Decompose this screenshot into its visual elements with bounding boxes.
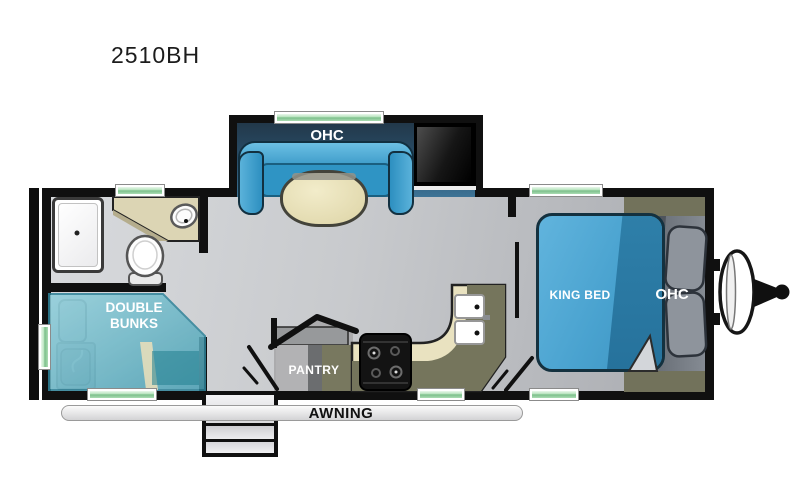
double-bunks-label: DOUBLE BUNKS	[84, 300, 184, 332]
window-bunk-side	[39, 325, 50, 369]
vanity-sink	[113, 197, 200, 241]
spare-tire	[711, 251, 754, 333]
window-bedroom-bottom	[530, 389, 578, 400]
window-bathroom	[116, 185, 164, 196]
kitchen-sink	[455, 321, 484, 344]
window-bunk-bottom	[88, 389, 156, 400]
slide-ohc-label: OHC	[297, 127, 357, 144]
window-slide	[275, 112, 383, 123]
entry-door-swing	[244, 347, 277, 389]
floorplan-2510bh: 2510BH	[0, 0, 800, 481]
window-kitchen	[418, 389, 464, 400]
hitch	[754, 279, 790, 307]
king-bed-label: KING BED	[538, 288, 622, 302]
pantry-cabinet	[271, 317, 356, 391]
pantry-label: PANTRY	[276, 363, 352, 377]
shower-drain	[75, 231, 80, 236]
bed-sheet-fold	[629, 336, 657, 371]
toilet	[127, 236, 163, 285]
stove	[360, 334, 411, 390]
kitchen-sink	[455, 295, 484, 318]
window-bedroom-top	[530, 185, 602, 196]
awning-label: AWNING	[306, 405, 376, 422]
double-bunks-line2: BUNKS	[84, 316, 184, 332]
double-bunks-line1: DOUBLE	[84, 300, 184, 316]
awning-rail	[61, 405, 523, 421]
bedroom-ohc-label: OHC	[649, 286, 695, 303]
